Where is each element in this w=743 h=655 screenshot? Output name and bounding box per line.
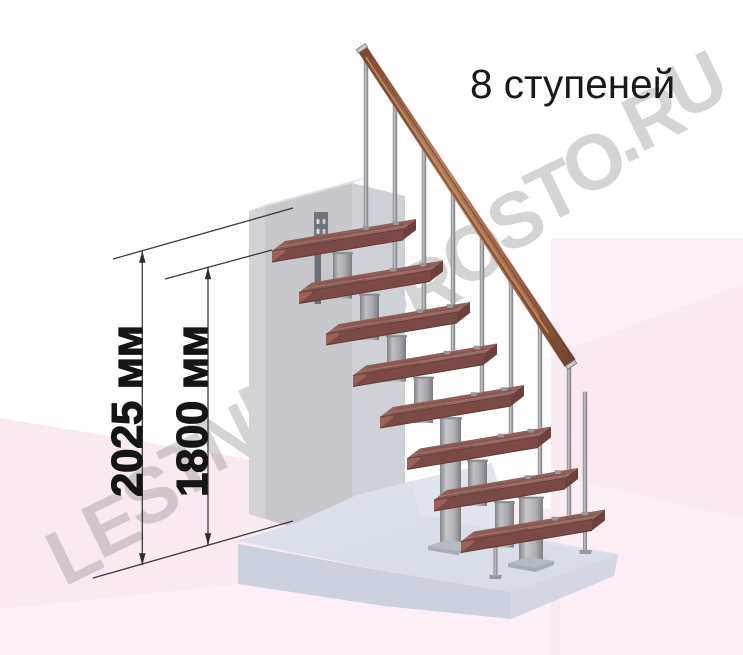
svg-text:1800 мм: 1800 мм [168,325,217,497]
svg-text:2025 мм: 2025 мм [103,325,152,497]
svg-text:8 ступеней: 8 ступеней [470,61,675,107]
